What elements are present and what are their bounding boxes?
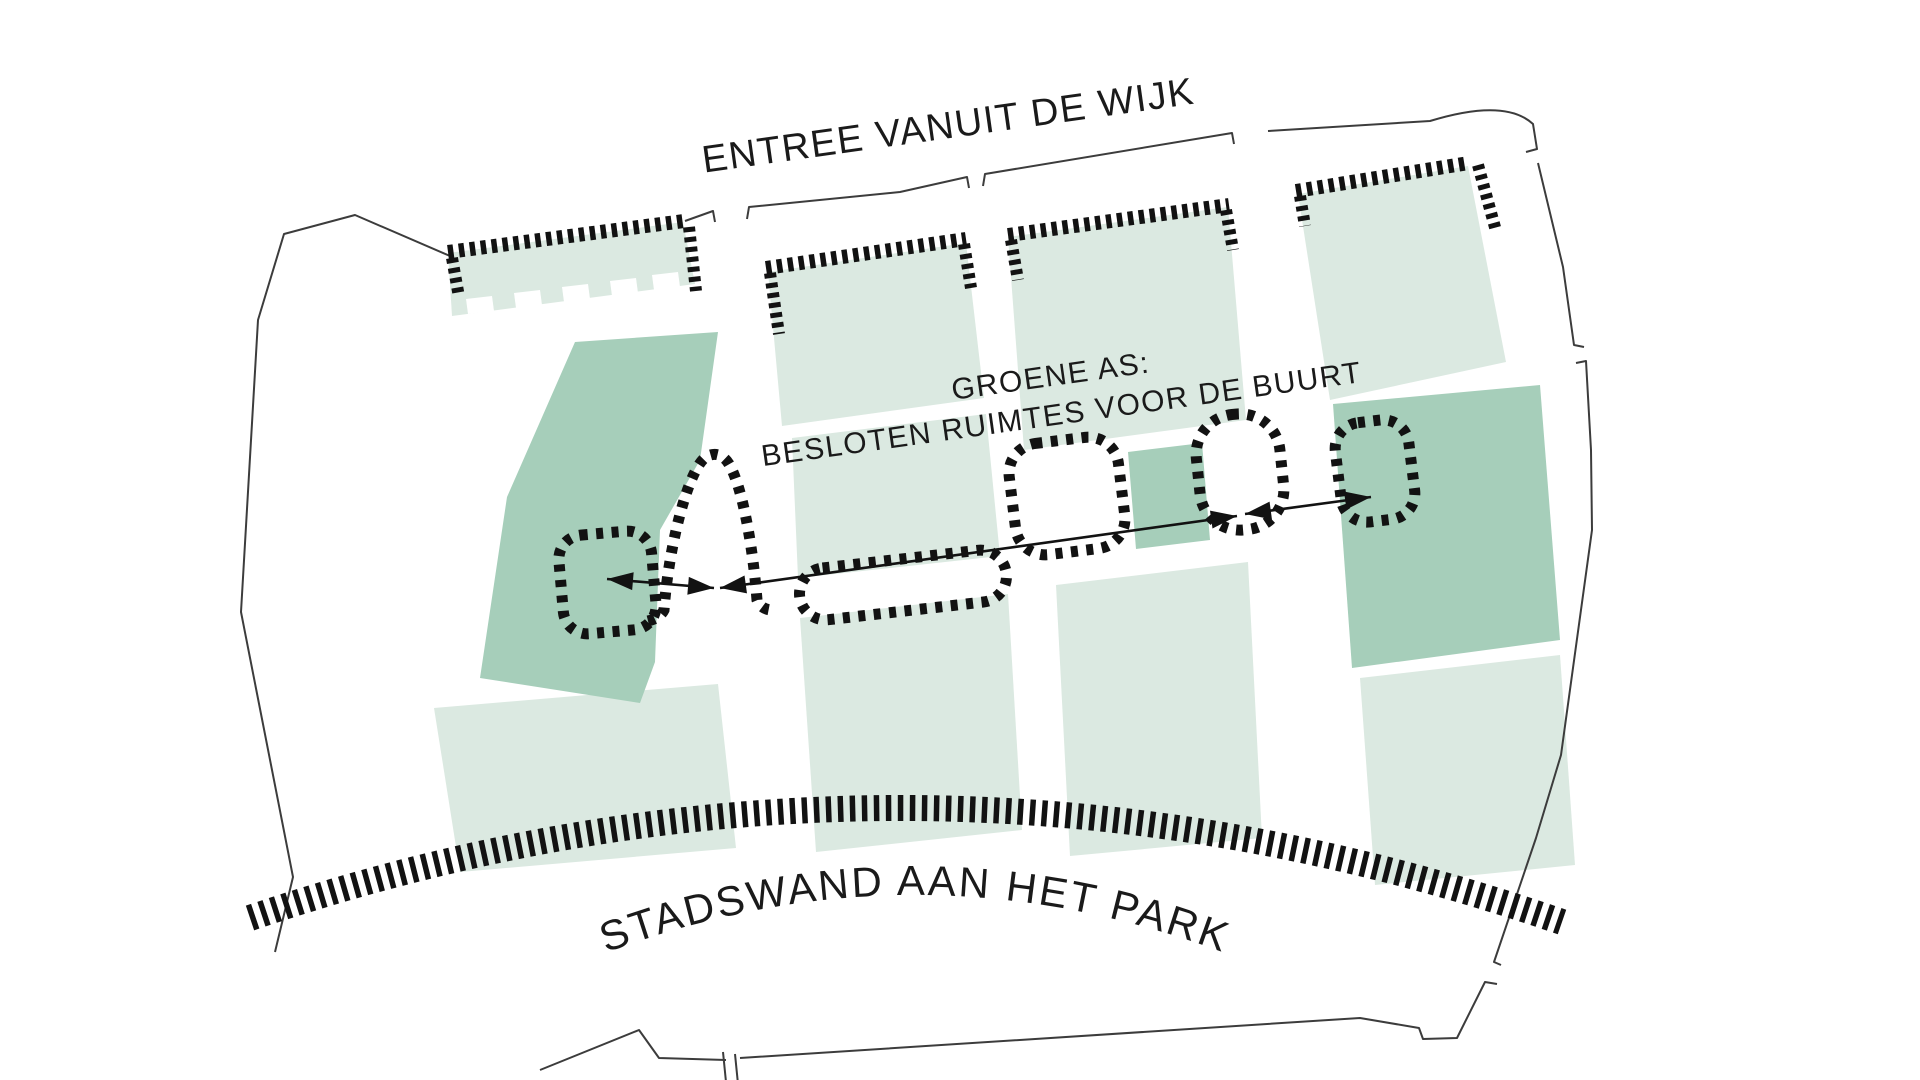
boundary-top-1 [685,211,715,222]
boundary-tick-1 [723,1052,726,1080]
boundary-left [241,215,450,952]
block-top-1-notch [610,278,638,296]
entry-wall-1-right-col [689,227,696,291]
block-top-1-notch [562,284,590,302]
boundary-tick-2 [735,1054,738,1080]
site-plan-svg: ENTREE VANUIT DE WIJKGROENE AS:BESLOTEN … [0,0,1920,1080]
stadswand-label: STADSWAND AAN HET PARK [593,857,1237,961]
axis-arrow-1-head [687,577,714,595]
boundary-bottom-right [740,982,1497,1058]
boundary-right-1 [1538,163,1584,347]
boundary-bottom-left [540,1030,726,1070]
boundary-top-2 [747,177,969,219]
building-blocks-layer [434,166,1575,885]
boundary-top-right [1268,110,1537,152]
site-plan-diagram: ENTREE VANUIT DE WIJKGROENE AS:BESLOTEN … [0,0,1920,1080]
block-top-2 [768,243,984,426]
entry-wall-4-right-col [1478,165,1496,231]
axis-arrow-2-head [720,575,747,593]
block-top-1-notch [466,296,494,314]
entree-label: ENTREE VANUIT DE WIJK [699,71,1197,182]
block-bottom-3 [1056,562,1262,856]
block-bottom-right [1360,655,1575,885]
boundary-top-3 [983,133,1234,186]
block-top-1-notch [652,272,680,290]
axis-arrow-3-head [1245,502,1272,520]
block-top-1-notch [514,290,542,308]
